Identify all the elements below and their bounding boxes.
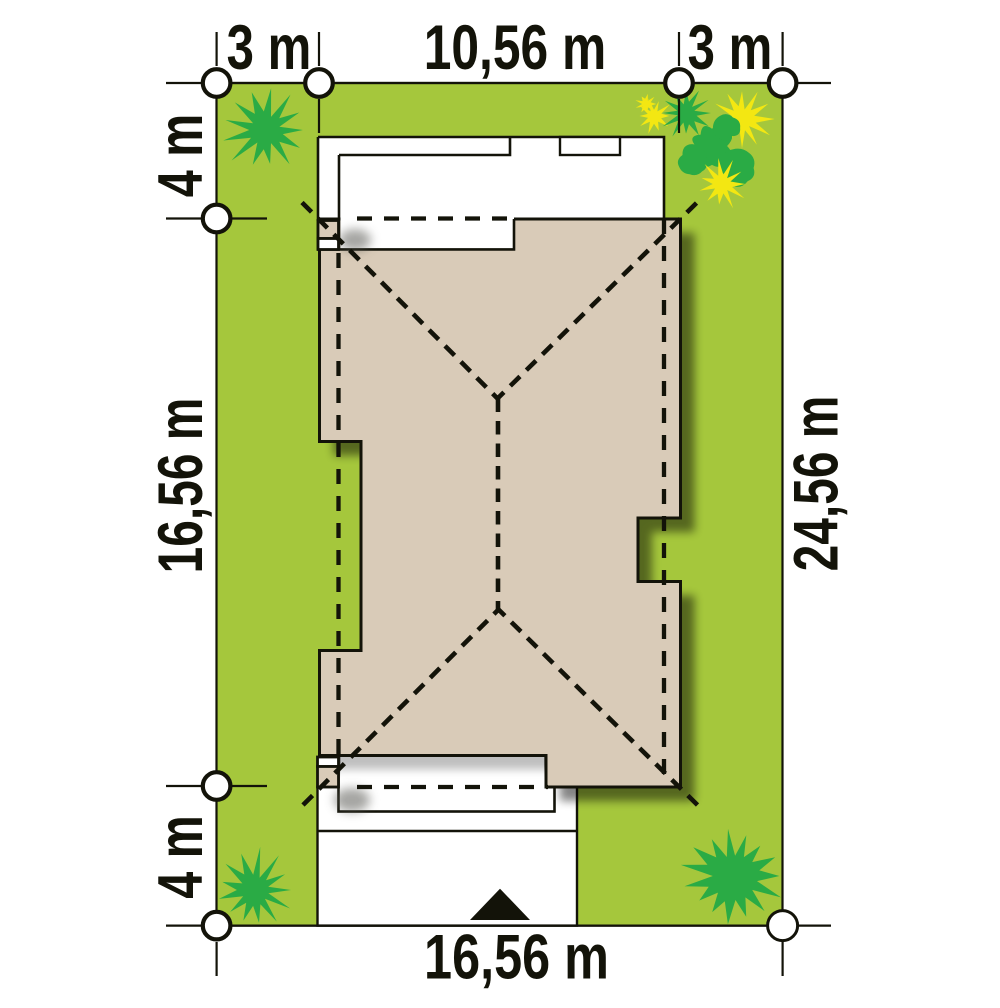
svg-text:16,56 m: 16,56 m (424, 922, 609, 993)
svg-text:10,56 m: 10,56 m (424, 14, 607, 84)
svg-text:4 m: 4 m (145, 114, 216, 198)
svg-text:24,56 m: 24,56 m (780, 396, 851, 572)
svg-text:3 m: 3 m (227, 12, 312, 82)
svg-text:16,56 m: 16,56 m (145, 398, 216, 574)
svg-text:4 m: 4 m (145, 815, 216, 899)
svg-text:3 m: 3 m (688, 12, 773, 82)
